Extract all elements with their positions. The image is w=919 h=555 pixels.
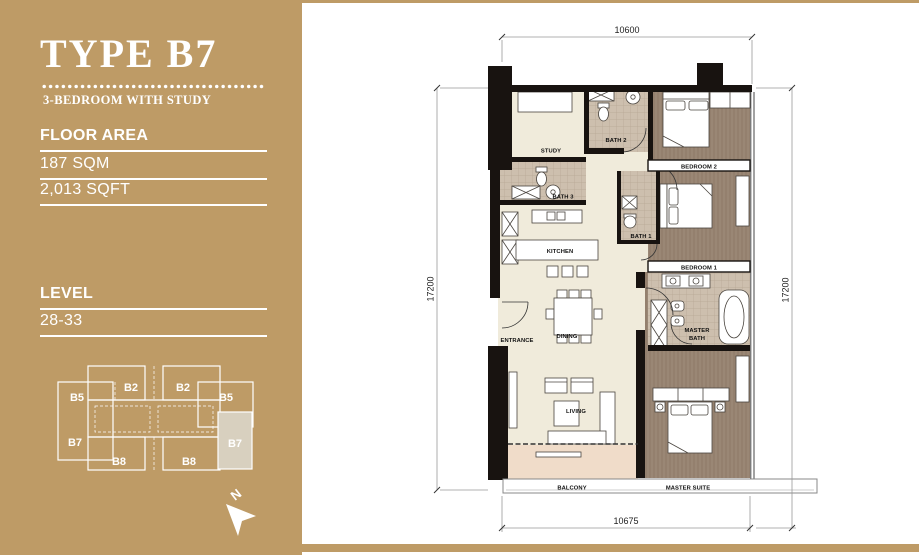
key-plan-unit-b2-right: B2 [176,382,190,394]
dimension-left: 17200 [426,276,436,301]
key-plan-unit-b8-left: B8 [112,456,126,468]
unit-type-title: TYPE B7 [40,30,217,77]
room-label-living: LIVING [566,409,586,415]
key-plan-unit-b7-highlight: B7 [228,438,242,450]
room-label-master-suite: MASTER SUITE [666,486,710,492]
key-plan-unit-b7-left: B7 [68,437,82,449]
key-plan-unit-b8-right: B8 [182,456,196,468]
page: { "panel": { "title": "TYPE B7", "subtit… [0,0,919,555]
floor-area-sqft: 2,013 SQFT [40,181,267,206]
floor-plan: 10600 10675 17200 17200 STUDY BATH 2 BAT… [425,15,820,543]
room-label-bath1: BATH 1 [630,234,652,240]
north-pointer [226,504,256,536]
dimension-right: 17200 [781,277,791,302]
room-label-bedroom2: BEDROOM 2 [681,165,717,171]
room-label-bedroom1: BEDROOM 1 [681,266,718,272]
key-plan-unit-b2-left: B2 [124,382,138,394]
dimension-bottom: 10675 [613,516,638,526]
bottom-gold-strip [302,544,919,552]
room-label-kitchen: KITCHEN [547,249,573,255]
key-plan-unit-b5-right: B5 [219,392,233,404]
room-label-bath3: BATH 3 [552,195,574,201]
room-label-balcony: BALCONY [557,486,586,492]
info-panel: TYPE B7 3-BEDROOM WITH STUDY FLOOR AREA … [0,0,302,555]
room-label-dining: DINING [557,334,578,340]
room-label-master-bath-line1: MASTER [684,328,710,334]
room-label-study: STUDY [541,149,561,155]
level-label: LEVEL [40,285,267,310]
dimension-top: 10600 [614,25,639,35]
key-plan-unit-b5-left: B5 [70,392,84,404]
room-label-bath2: BATH 2 [605,138,626,144]
north-arrow-icon: N [222,486,262,544]
unit-subtitle: 3-BEDROOM WITH STUDY [43,93,211,108]
dotted-divider [41,84,266,89]
top-gold-strip [302,0,919,3]
key-plan: B5 B2 B2 B5 B7 B7 B8 B8 [55,362,255,492]
floor-area-label: FLOOR AREA [40,127,267,152]
floor-area-sqm: 187 SQM [40,155,267,180]
room-label-master-bath-line2: BATH [689,336,705,342]
level-value: 28-33 [40,312,267,337]
room-label-entrance: ENTRANCE [500,338,533,344]
north-label: N [228,486,245,503]
